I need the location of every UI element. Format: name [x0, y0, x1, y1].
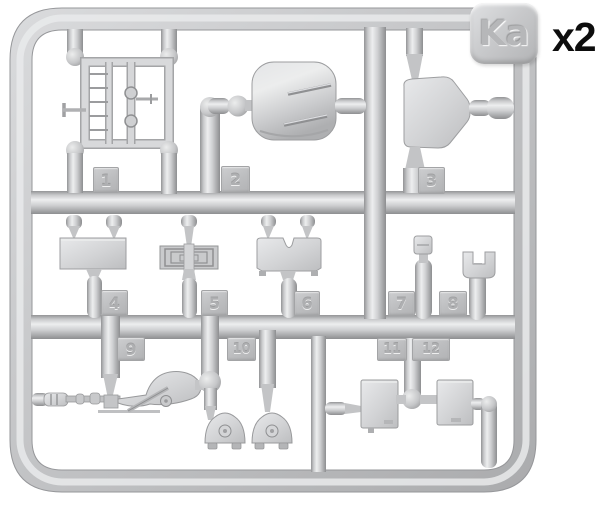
part-number-tab-7: 7: [388, 291, 415, 316]
sprue-frame-graphic: [0, 0, 615, 505]
sprue-photo: 1 2 3 4 5 6 7 8 9 10 11 12 Ka x2: [0, 0, 615, 505]
bottom-center-runner: [311, 336, 326, 472]
sprue-code-label: Ka: [479, 14, 530, 54]
sprue-code-tab: Ka: [470, 3, 538, 64]
part-number-tab-5: 5: [201, 290, 228, 316]
part-7-pin: [414, 236, 432, 319]
part-number-tab-6: 6: [294, 291, 320, 316]
part-11-12-boxes: [325, 338, 497, 468]
part-number-tab-2: 2: [221, 166, 250, 193]
part-number-tab-10: 10: [227, 337, 256, 361]
part-number-tab-4: 4: [101, 290, 128, 316]
quantity-multiplier: x2: [552, 14, 614, 60]
part-number-tab-9: 9: [117, 337, 145, 361]
part-number-tab-3: 3: [418, 167, 445, 194]
part-number-tab-8: 8: [439, 291, 467, 316]
part-number-tab-12: 12: [412, 338, 450, 361]
part-1-frame-bracket: [63, 29, 178, 194]
part-8-fork: [463, 252, 495, 320]
divider-runner: [364, 27, 386, 319]
runner-top: [31, 191, 515, 214]
part-number-tab-1: 1: [93, 167, 119, 193]
part-number-tab-11: 11: [377, 338, 407, 361]
